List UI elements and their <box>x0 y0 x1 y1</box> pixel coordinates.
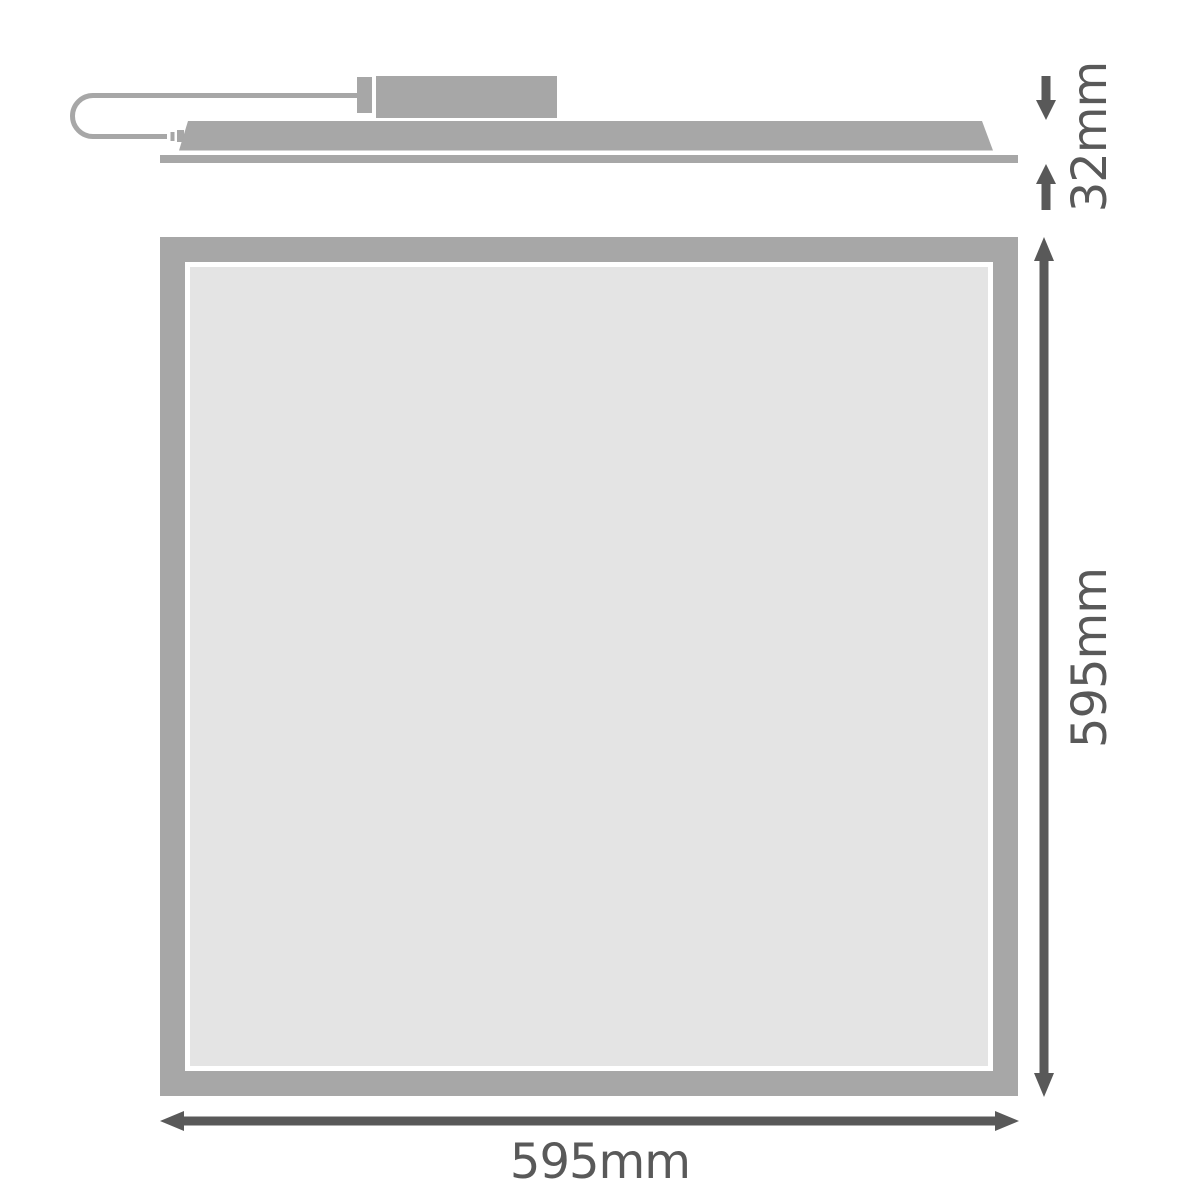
panel-front-view <box>160 237 1018 1096</box>
height-dimension-label: 595mm <box>1062 568 1118 748</box>
width-arrow-right-icon <box>995 1111 1019 1131</box>
width-dimension: 595mm <box>160 1111 1019 1190</box>
width-arrow-left-icon <box>160 1111 184 1131</box>
depth-arrow-down-icon <box>1036 100 1056 120</box>
depth-dimension-label: 32mm <box>1062 62 1118 213</box>
height-dimension: 595mm <box>1034 237 1118 1097</box>
dimension-diagram-svg: 32mm 595mm 595mm <box>0 0 1200 1200</box>
height-arrow-down-icon <box>1034 1073 1054 1097</box>
led-panel-dimension-diagram: 32mm 595mm 595mm <box>0 0 1200 1200</box>
width-dimension-label: 595mm <box>510 1134 690 1190</box>
driver-box <box>376 76 557 118</box>
height-arrow-up-icon <box>1034 237 1054 261</box>
panel-body-side <box>179 121 993 151</box>
depth-arrow-up-icon <box>1036 164 1056 184</box>
depth-dimension: 32mm <box>1036 62 1118 213</box>
panel-side-view <box>73 76 1019 163</box>
panel-diffuser <box>190 267 988 1066</box>
cable-plug-tip <box>171 132 175 141</box>
driver-connector <box>357 77 372 113</box>
panel-flange-side <box>160 155 1018 163</box>
